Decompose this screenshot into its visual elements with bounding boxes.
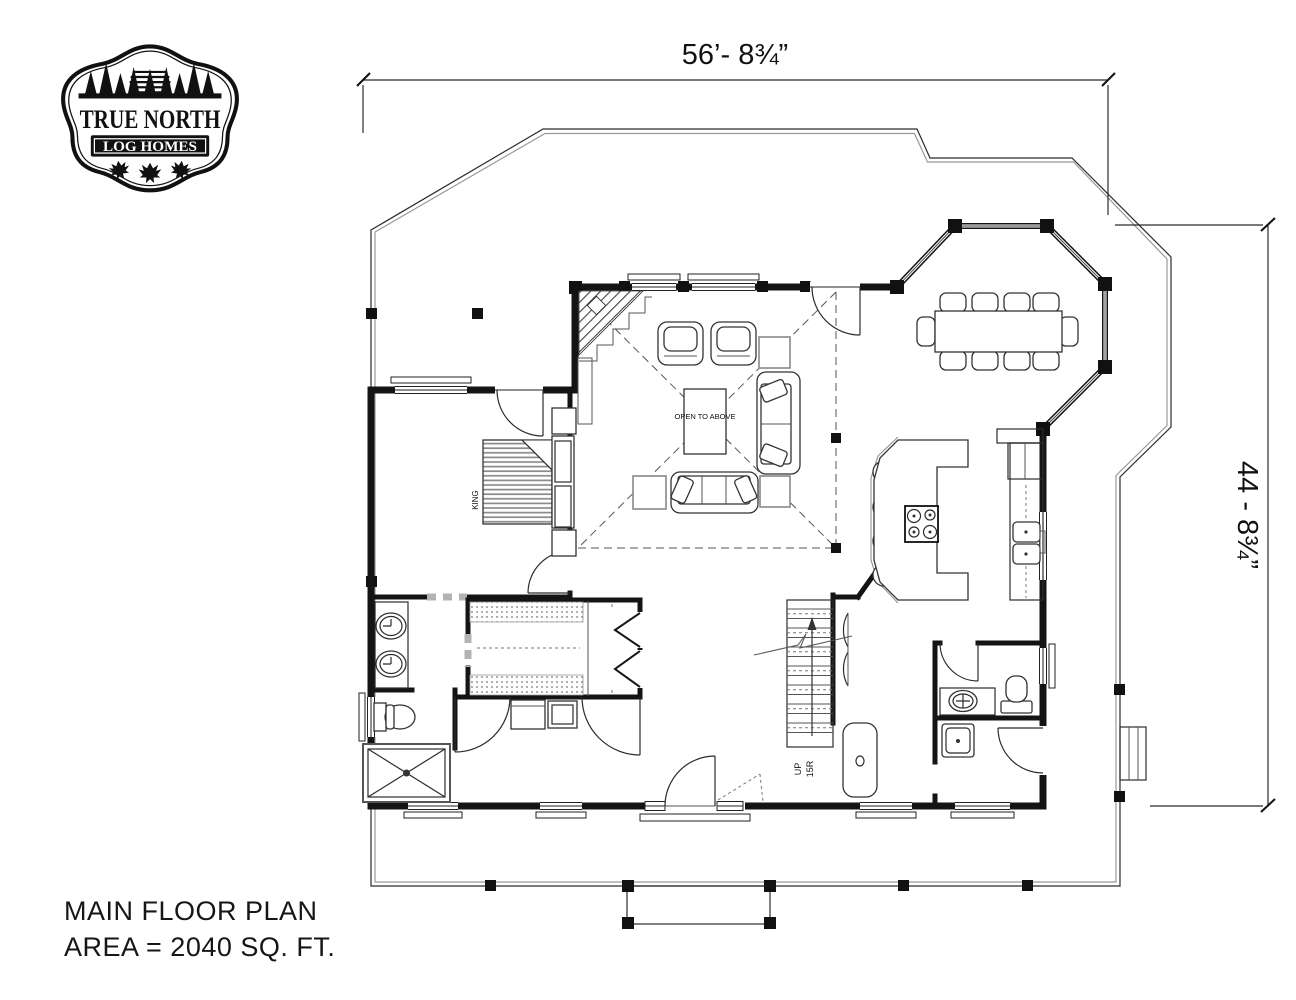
armchair-2 [711,322,756,365]
stairs-risers-label: 15R [805,760,815,777]
powder-sink [949,691,977,712]
door-front-entry [640,756,763,821]
mudroom [843,723,974,797]
closet-bifold-doors [615,612,646,688]
cooktop [905,506,938,542]
deck-steps-right [1120,727,1146,780]
utility-sink [942,724,974,757]
window-bedroom [391,377,471,396]
stairs: UP 15R [754,600,852,777]
kitchen [871,429,1045,603]
door-bedroom-hall [528,551,570,593]
side-table [759,337,790,368]
entry-bench [843,723,877,797]
door-hall-right [582,697,640,755]
kitchen-sink [1013,522,1045,564]
window-greatroom-2 [688,274,759,293]
logo-title: TRUE NORTH [80,104,221,134]
powder-toilet [1001,676,1032,713]
bedroom: KING [471,408,576,556]
window-mud-bottom-1 [856,801,916,819]
window-mud-bottom-2 [951,801,1014,819]
powder-room [940,676,1032,715]
shower [363,744,450,802]
sink-1 [376,613,406,639]
toilet-master [374,703,415,731]
window-bath-bottom [404,801,462,819]
plan-title: MAIN FLOOR PLAN [64,894,335,930]
armchair-1 [658,322,703,365]
door-greatroom-deck [810,282,860,336]
hall-cabinets [511,700,577,729]
dimension-right-label: 44 - 8¾” [1231,461,1263,569]
open-to-above-label: OPEN TO ABOVE [675,412,736,421]
dining-area [917,293,1078,370]
dimension-right: 44 - 8¾” [1115,218,1275,812]
door-powder [940,643,978,681]
door-hall-left [455,697,510,752]
window-powder [1038,644,1056,688]
dimension-top-label: 56’- 8¾” [682,39,788,71]
coffee-table [684,389,726,454]
end-table-right [760,476,790,507]
nightstand-bottom [552,530,576,556]
logo-subtitle: LOG HOMES [103,139,197,155]
nightstand-top [552,408,576,434]
fireplace [578,291,652,424]
stairs-up-label: UP [793,763,803,776]
refrigerator [1008,443,1043,479]
king-bed [483,408,576,556]
sofa-bottom [670,472,758,513]
sofa-right [757,372,800,474]
title-block: MAIN FLOOR PLAN AREA = 2040 SQ. FT. [64,894,335,965]
deck-steps-front [627,886,770,924]
plan-area: AREA = 2040 SQ. FT. [64,930,335,966]
great-room: OPEN TO ABOVE [578,291,841,553]
end-table-left [633,476,666,509]
king-label: KING [471,490,480,510]
linen-bifold [843,613,848,686]
dimension-top: 56’- 8¾” [357,39,1115,215]
door-bedroom [495,385,543,437]
window-greatroom-1 [628,274,680,293]
sink-2 [376,651,406,677]
dining-table [935,311,1062,352]
window-hall-bottom [536,801,586,819]
door-mudroom-deck [998,726,1049,775]
walk-in-closet [470,601,612,696]
logo: TRUE NORTH LOG HOMES [50,40,250,210]
floor-plan-sheet: OPEN TO ABOVE [0,0,1296,1000]
